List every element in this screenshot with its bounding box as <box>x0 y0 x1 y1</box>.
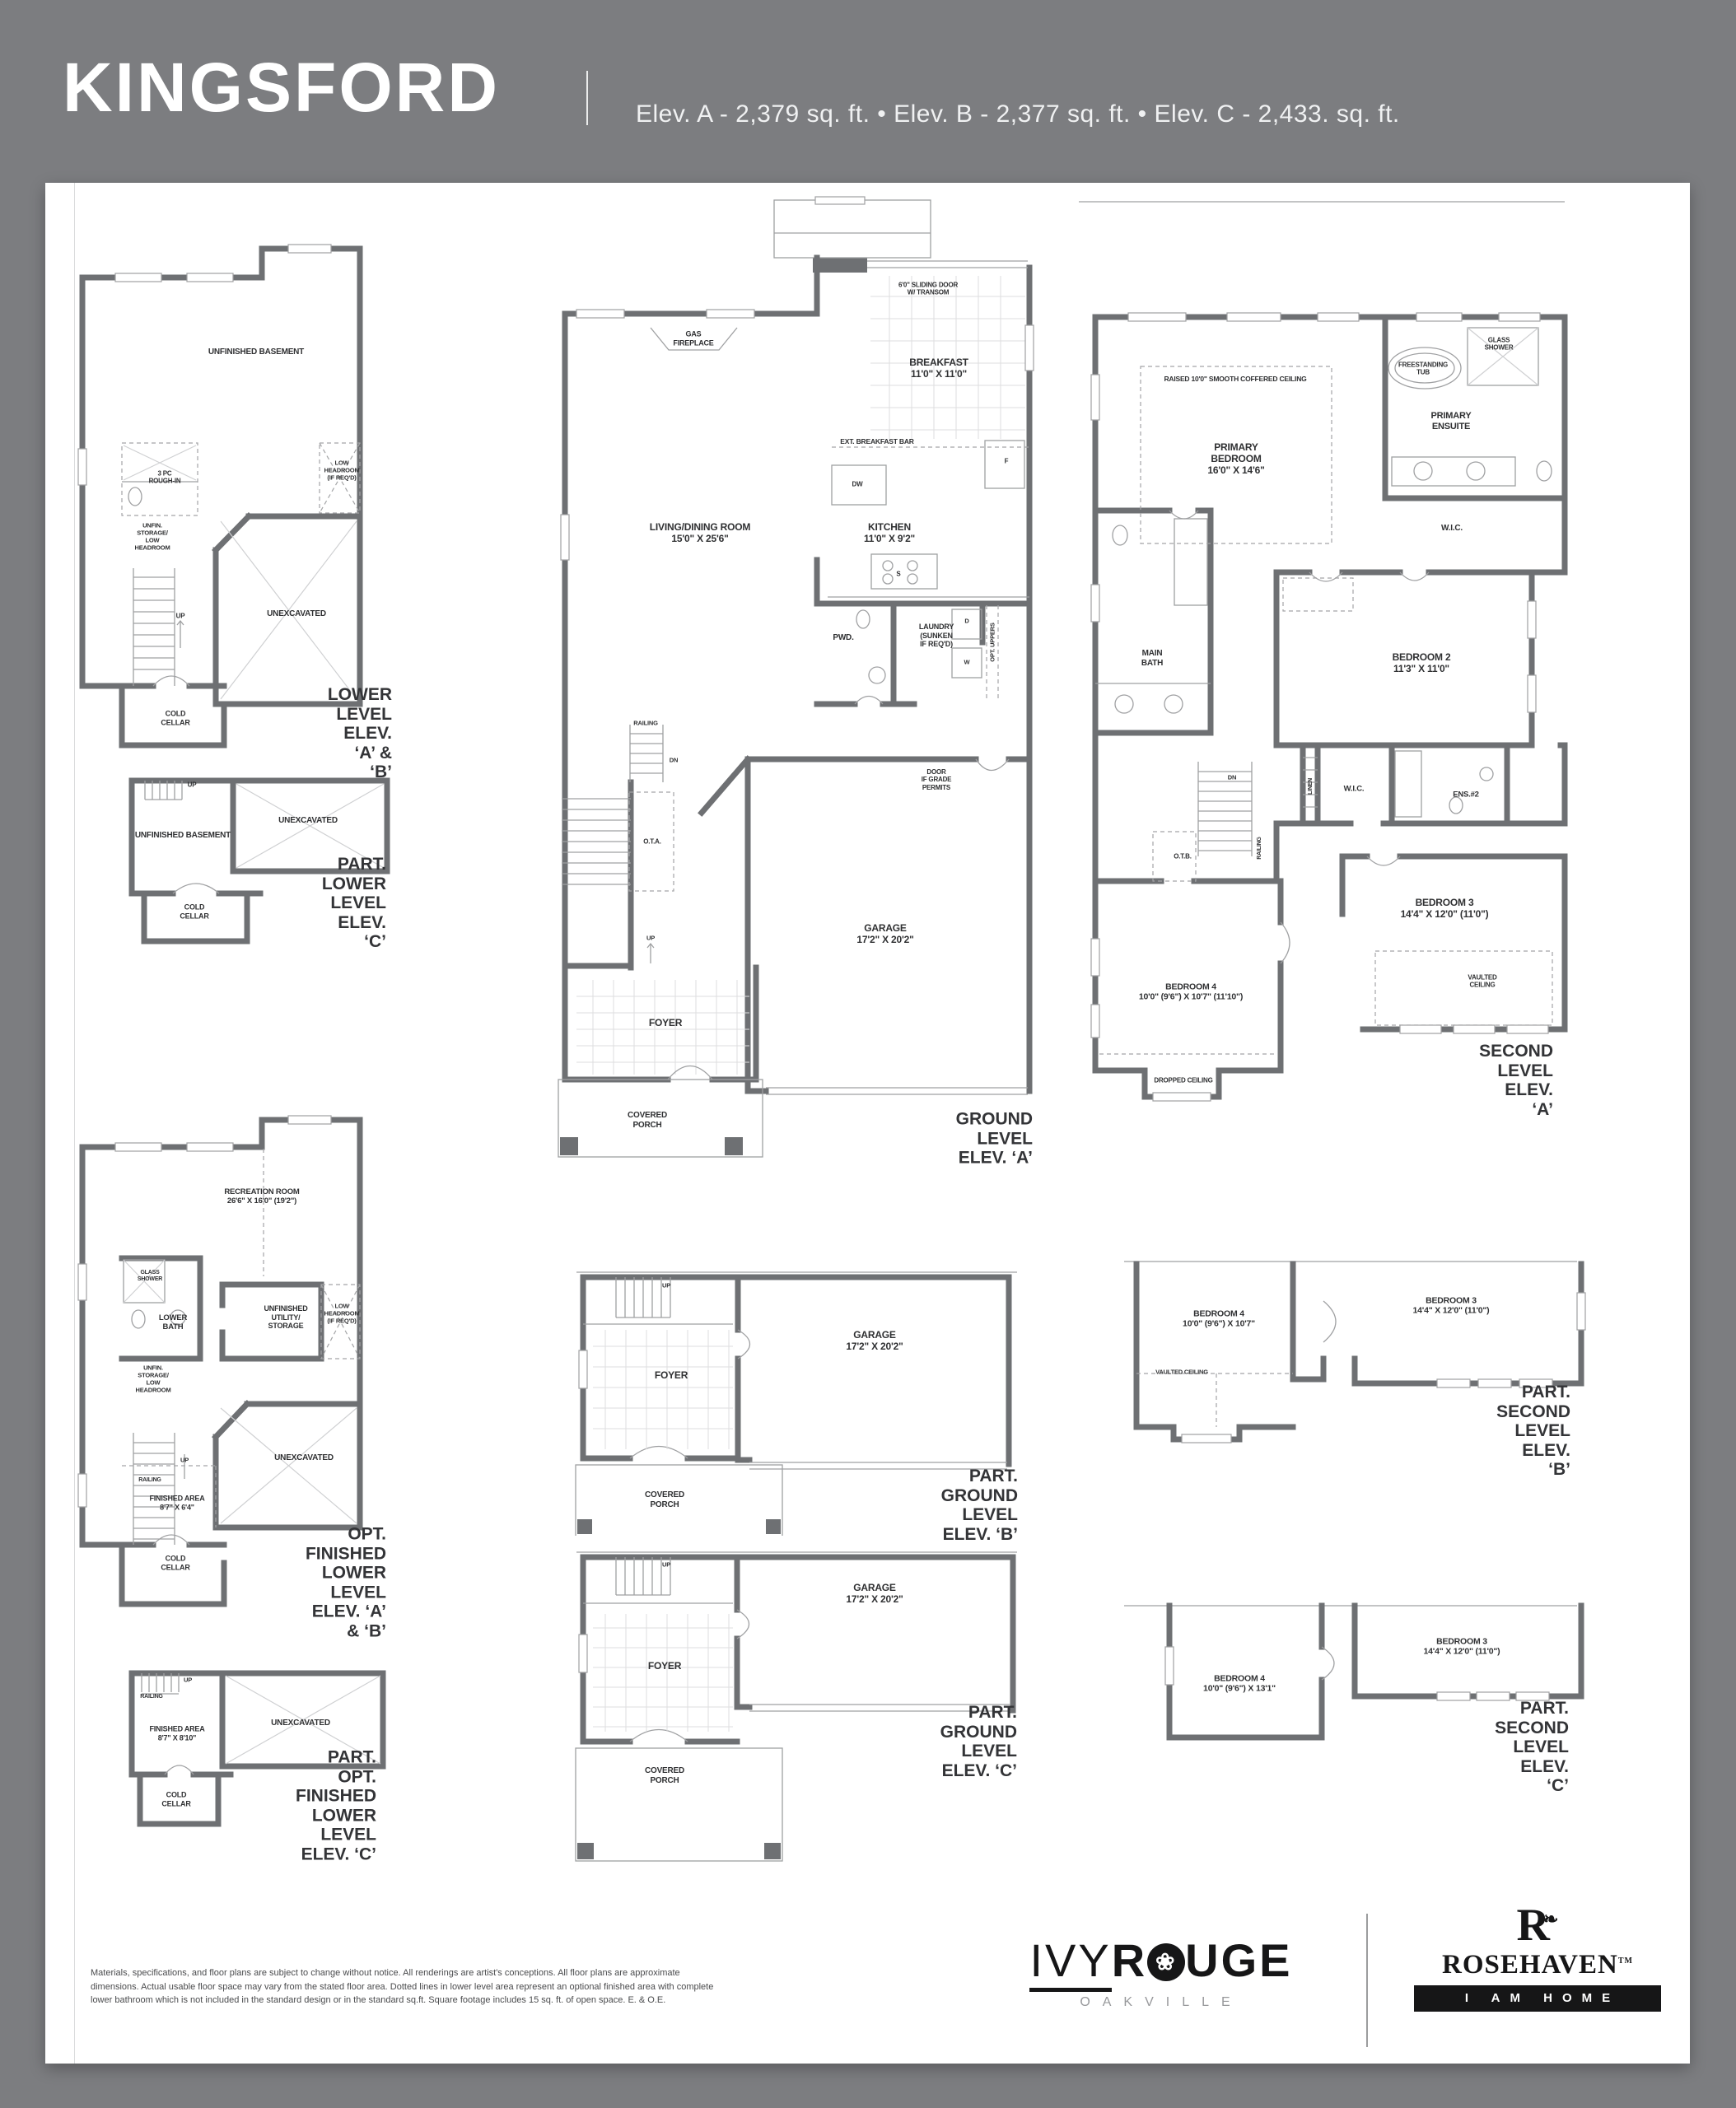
plan-part-second-level-c: BEDROOM 4 10'0" (9'6") X 13'1"BEDROOM 3 … <box>1116 1597 1610 1812</box>
room-label: S <box>896 570 900 577</box>
room-label: COLD CELLAR <box>180 902 208 920</box>
room-label: UNEXCAVATED <box>274 1453 334 1463</box>
room-label: UNFIN. STORAGE/ LOW HEADROOM <box>136 1364 171 1393</box>
room-label: COVERED PORCH <box>628 1111 667 1131</box>
room-label: UNFINISHED UTILITY/ STORAGE <box>264 1304 307 1331</box>
plan-caption: PART. LOWER LEVEL ELEV. ‘C’ <box>322 855 386 952</box>
room-label: W <box>964 660 970 667</box>
room-label: LINEN <box>1308 778 1314 795</box>
trademark-symbol: TM <box>1618 1956 1633 1966</box>
plan-caption: GROUND LEVEL ELEV. ‘A’ <box>956 1110 1033 1168</box>
room-label: 6'0" SLIDING DOOR W/ TRANSOM <box>898 282 958 297</box>
ivy-rouge-logo: IVYR❀UGE OAKVILLE <box>984 1933 1338 2010</box>
plan-second-level-a: RAISED 10'0" SMOOTH COFFERED CEILINGPRIM… <box>1071 198 1577 1103</box>
room-label: BEDROOM 3 14'4" X 12'0" (11'0") <box>1424 1637 1500 1658</box>
room-label: PRIMARY BEDROOM 16'0" X 14'6" <box>1207 441 1264 476</box>
room-label: GLASS SHOWER <box>1485 337 1514 352</box>
room-label: D <box>964 618 968 626</box>
footer-divider <box>1366 1914 1368 2047</box>
room-label: UP <box>662 1283 670 1290</box>
room-label: DROPPED CEILING <box>1154 1076 1212 1084</box>
ivy-logo-text: IVY <box>1029 1934 1111 1992</box>
room-label: RECREATION ROOM 26'6" X 16'0" (19'2") <box>224 1187 299 1206</box>
room-label: GAS FIREPLACE <box>673 329 713 347</box>
room-label: UP <box>176 612 185 619</box>
room-label: PRIMARY ENSUITE <box>1431 411 1472 432</box>
room-label: BEDROOM 2 11'3" X 11'0" <box>1393 651 1451 674</box>
room-label: BREAKFAST 11'0" X 11'0" <box>909 357 968 380</box>
leaf-icon: ❧ <box>1543 1909 1558 1929</box>
room-label: O.T.B. <box>1174 852 1191 860</box>
room-label: RAILING <box>633 721 657 728</box>
room-label: BEDROOM 4 10'0" (9'6") X 10'7" <box>1183 1309 1255 1330</box>
plan-caption: OPT. FINISHED LOWER LEVEL ELEV. ‘A’ & ‘B… <box>306 1524 386 1640</box>
room-label: FINISHED AREA 8'7" X 6'4" <box>149 1494 204 1511</box>
header-divider <box>586 71 588 125</box>
room-label: BEDROOM 3 14'4" X 12'0" (11'0") <box>1413 1296 1490 1317</box>
plan-opt-finished-lower-ab: RECREATION ROOM 26'6" X 16'0" (19'2")GLA… <box>72 1112 394 1635</box>
plan-part-lower-level-c: UPUNFINISHED BASEMENTUNEXCAVATEDCOLD CEL… <box>72 770 394 944</box>
room-label: COVERED PORCH <box>645 1766 684 1786</box>
room-label: DOOR IF GRADE PERMITS <box>922 768 952 791</box>
plan-caption: PART. GROUND LEVEL ELEV. ‘C’ <box>940 1703 1017 1780</box>
plan-caption: LOWER LEVEL ELEV. ‘A’ & ‘B’ <box>328 685 392 782</box>
room-label: GARAGE 17'2" X 20'2" <box>846 1329 903 1352</box>
plan-part-second-level-b: BEDROOM 4 10'0" (9'6") X 10'7"BEDROOM 3 … <box>1116 1252 1610 1466</box>
room-label: FOYER <box>655 1369 688 1381</box>
room-label: UNFINISHED BASEMENT <box>208 347 304 357</box>
room-label: UNFINISHED BASEMENT <box>135 831 231 841</box>
room-label: GARAGE 17'2" X 20'2" <box>856 922 913 945</box>
room-label: UNFIN. STORAGE/ LOW HEADROOM <box>135 522 170 551</box>
rosehaven-tagline: I AM HOME <box>1414 1985 1661 2012</box>
room-label: BEDROOM 4 10'0" (9'6") X 10'7" (11'10") <box>1139 982 1243 1003</box>
room-label: UNEXCAVATED <box>278 816 338 826</box>
page-title: KINGSFORD <box>63 53 500 122</box>
room-label: KITCHEN 11'0" X 9'2" <box>864 521 915 544</box>
room-label: COLD CELLAR <box>161 709 189 726</box>
plan-caption: PART. SECOND LEVEL ELEV. ‘B’ <box>1496 1383 1570 1480</box>
plan-part-opt-finished-lower-c: UPRAILINGFINISHED AREA 8'7" X 8'10"UNEXC… <box>72 1667 394 1853</box>
room-label: OPT. UPPERS <box>990 623 997 661</box>
plan-part-ground-level-b: UPFOYERGARAGE 17'2" X 20'2"COVERED PORCH… <box>564 1252 1058 1536</box>
plan-ground-level-a: GAS FIREPLACE6'0" SLIDING DOOR W/ TRANSO… <box>527 194 1042 1169</box>
room-label: VAULTED CEILING <box>1155 1369 1208 1377</box>
room-label: W.I.C. <box>1344 784 1365 793</box>
room-label: W.I.C. <box>1441 524 1463 534</box>
room-label: RAISED 10'0" SMOOTH COFFERED CEILING <box>1164 375 1306 383</box>
plan-lower-level-ab: UNFINISHED BASEMENT3 PC ROUGH-INLOW HEAD… <box>72 194 371 762</box>
plan-sheet: UNFINISHED BASEMENT3 PC ROUGH-INLOW HEAD… <box>45 183 1690 2064</box>
room-label: BEDROOM 3 14'4" X 12'0" (11'0") <box>1401 897 1489 920</box>
room-label: LOW HEADROOM (IF REQ'D) <box>324 460 360 483</box>
room-label: UP <box>180 1457 189 1465</box>
room-label: RAILING <box>1257 837 1263 859</box>
room-label: UP <box>662 1562 670 1569</box>
room-label: BEDROOM 4 10'0" (9'6") X 13'1" <box>1203 1674 1276 1695</box>
room-label: UP <box>188 781 197 788</box>
plan-caption: SECOND LEVEL ELEV. ‘A’ <box>1479 1042 1553 1119</box>
room-label: GARAGE 17'2" X 20'2" <box>846 1582 903 1605</box>
room-label: LOWER BATH <box>159 1313 187 1331</box>
plan-caption: PART. OPT. FINISHED LOWER LEVEL ELEV. ‘C… <box>296 1747 376 1863</box>
room-label: FREESTANDING TUB <box>1398 361 1448 377</box>
room-label: UNEXCAVATED <box>271 1719 330 1728</box>
room-label: GLASS SHOWER <box>138 1270 162 1284</box>
room-label: VAULTED CEILING <box>1468 974 1496 990</box>
room-label: FOYER <box>649 1017 682 1028</box>
room-label: RAILING <box>140 1694 162 1700</box>
room-label: EXT. BREAKFAST BAR <box>840 437 913 445</box>
page-subtitle-sqft: Elev. A - 2,379 sq. ft. • Elev. B - 2,37… <box>636 100 1400 128</box>
rosehaven-logo: R❧ ROSEHAVENTM I AM HOME <box>1414 1902 1661 2012</box>
rose-icon: ❀ <box>1147 1943 1185 1981</box>
room-label: MAIN BATH <box>1141 649 1163 669</box>
legal-disclaimer: Materials, specifications, and floor pla… <box>91 1966 718 2008</box>
room-label: PWD. <box>833 633 853 643</box>
room-label: ENS.#2 <box>1453 790 1479 799</box>
room-label: UP <box>646 935 655 943</box>
floorplan-sheet: { "header": { "title": "KINGSFORD", "sub… <box>0 0 1736 2108</box>
room-label: DW <box>852 480 863 487</box>
room-label: O.T.A. <box>643 837 660 845</box>
room-label: 3 PC ROUGH-IN <box>149 470 181 486</box>
room-label: DN <box>1228 775 1236 782</box>
oakville-label: OAKVILLE <box>984 1995 1338 2010</box>
rouge-logo-text-uge: UGE <box>1185 1934 1292 1986</box>
room-label: FINISHED AREA 8'7" X 8'10" <box>149 1724 204 1742</box>
plan-caption: PART. SECOND LEVEL ELEV. ‘C’ <box>1495 1699 1569 1796</box>
rouge-logo-text-r: R <box>1112 1934 1147 1986</box>
room-label: DN <box>670 758 678 765</box>
room-label: COLD CELLAR <box>161 1554 189 1571</box>
room-label: LOW HEADROOM (IF REQ'D) <box>324 1304 360 1326</box>
room-label: LAUNDRY (SUNKEN IF REQ'D) <box>919 623 954 649</box>
room-label: LIVING/DINING ROOM 15'0" X 25'6" <box>650 521 750 544</box>
room-label: RAILING <box>138 1477 161 1484</box>
room-label: FOYER <box>648 1660 681 1672</box>
room-label: F <box>1005 457 1009 464</box>
rosehaven-name: ROSEHAVEN <box>1442 1950 1618 1980</box>
room-label: COVERED PORCH <box>645 1490 684 1510</box>
room-label: COLD CELLAR <box>161 1790 190 1807</box>
plan-caption: PART. GROUND LEVEL ELEV. ‘B’ <box>941 1467 1018 1544</box>
room-label: UP <box>184 1677 192 1685</box>
plan-part-ground-level-c: UPFOYERGARAGE 17'2" X 20'2"COVERED PORCH… <box>564 1536 1058 1873</box>
room-label: UNEXCAVATED <box>267 609 326 619</box>
